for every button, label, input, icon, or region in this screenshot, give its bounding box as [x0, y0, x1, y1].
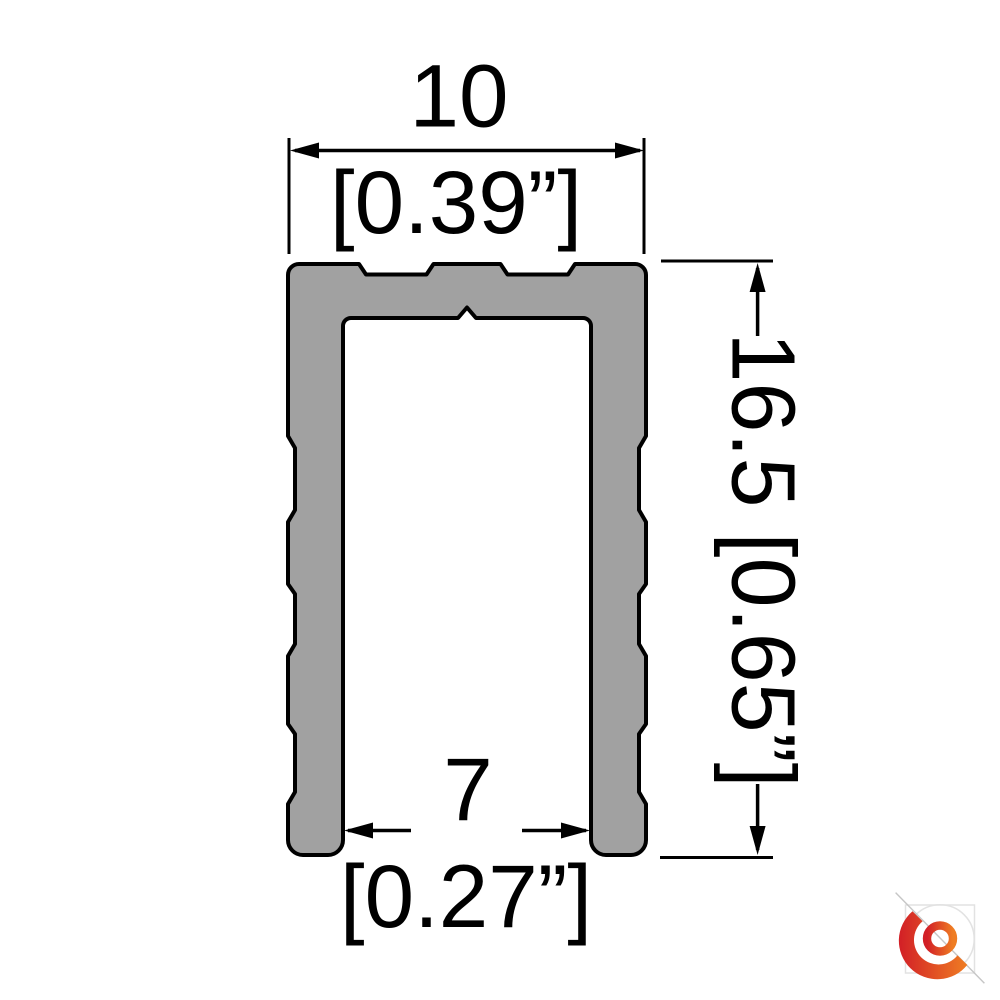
svg-text:10: 10 — [410, 46, 509, 146]
svg-text:7: 7 — [443, 739, 493, 839]
svg-text:16.5 [0.65”]: 16.5 [0.65”] — [713, 332, 813, 787]
svg-text:[0.27”]: [0.27”] — [340, 846, 592, 946]
svg-text:[0.39”]: [0.39”] — [330, 152, 582, 252]
